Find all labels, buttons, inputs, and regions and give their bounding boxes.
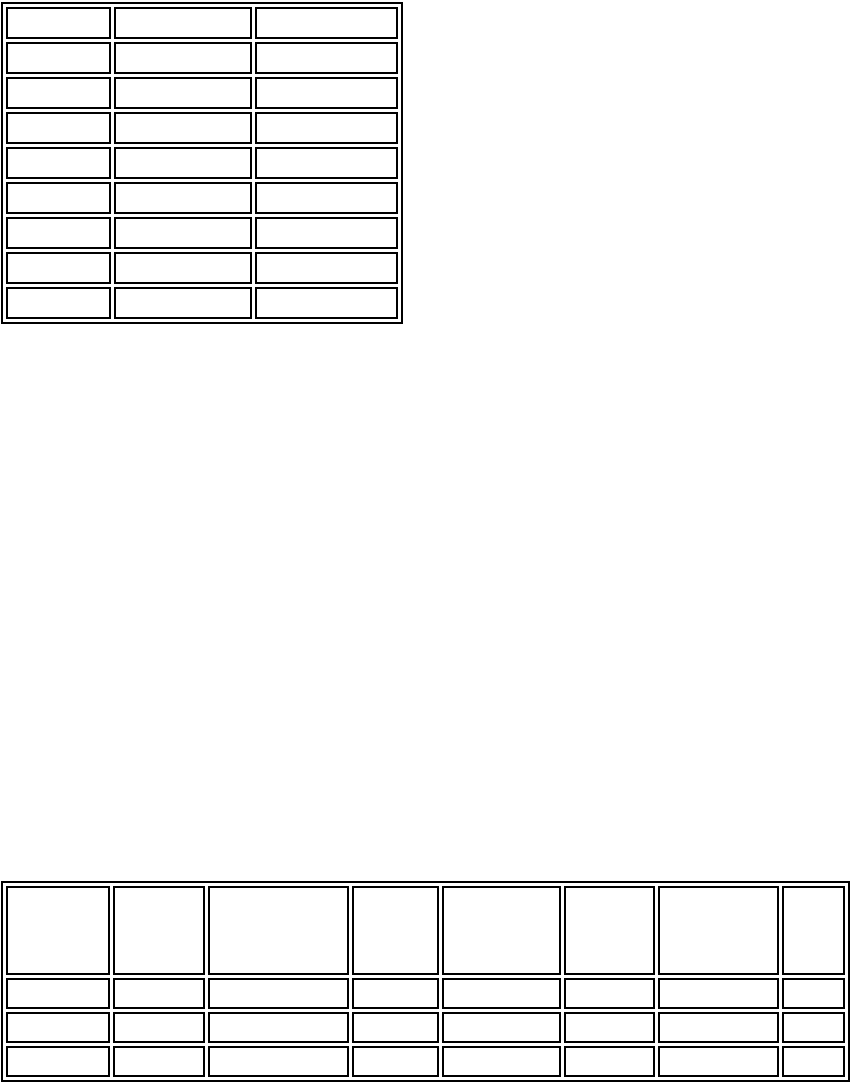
table-row	[6, 1012, 845, 1043]
table-cell	[782, 1046, 845, 1077]
table-cell	[352, 886, 439, 975]
table-row	[6, 112, 398, 144]
table-cell	[6, 287, 111, 319]
table-cell	[6, 112, 111, 144]
table-cell	[255, 42, 398, 74]
table-cell	[113, 1012, 205, 1043]
table-cell	[6, 978, 110, 1009]
table-cell	[352, 978, 439, 1009]
table-cell	[255, 7, 398, 39]
table-cell	[114, 77, 252, 109]
table-cell	[113, 978, 205, 1009]
table-row	[6, 182, 398, 214]
table-cell	[6, 252, 111, 284]
table-row	[6, 978, 845, 1009]
table-cell	[564, 1046, 655, 1077]
table-cell	[255, 217, 398, 249]
table-cell	[564, 1012, 655, 1043]
table-cell	[442, 1046, 561, 1077]
table-cell	[255, 77, 398, 109]
table-cell	[114, 252, 252, 284]
table-cell	[6, 1012, 110, 1043]
table-cell	[442, 978, 561, 1009]
table-cell	[255, 147, 398, 179]
table-row	[6, 77, 398, 109]
table-cell	[658, 886, 779, 975]
top-left-table-body	[6, 7, 398, 319]
table-cell	[208, 978, 349, 1009]
table-cell	[255, 182, 398, 214]
table-cell	[6, 77, 111, 109]
table-cell	[208, 1012, 349, 1043]
table-row	[6, 1046, 845, 1077]
table-cell	[208, 1046, 349, 1077]
table-row	[6, 147, 398, 179]
table-cell	[352, 1012, 439, 1043]
table-cell	[658, 978, 779, 1009]
table-cell	[113, 1046, 205, 1077]
table-cell	[6, 42, 111, 74]
table-cell	[113, 886, 205, 975]
table-cell	[6, 886, 110, 975]
table-cell	[6, 217, 111, 249]
table-row	[6, 42, 398, 74]
table-cell	[114, 217, 252, 249]
table-cell	[442, 886, 561, 975]
table-cell	[658, 1012, 779, 1043]
table-row	[6, 886, 845, 975]
table-cell	[782, 886, 845, 975]
table-cell	[564, 886, 655, 975]
table-cell	[782, 1012, 845, 1043]
table-row	[6, 217, 398, 249]
bottom-full-width-table	[1, 881, 850, 1082]
table-cell	[352, 1046, 439, 1077]
bottom-full-width-table-body	[6, 886, 845, 1077]
table-cell	[442, 1012, 561, 1043]
table-row	[6, 7, 398, 39]
table-cell	[255, 287, 398, 319]
table-cell	[255, 112, 398, 144]
table-cell	[114, 182, 252, 214]
table-cell	[114, 147, 252, 179]
table-cell	[564, 978, 655, 1009]
table-cell	[658, 1046, 779, 1077]
table-row	[6, 287, 398, 319]
table-cell	[114, 42, 252, 74]
table-cell	[6, 182, 111, 214]
table-cell	[782, 978, 845, 1009]
table-cell	[208, 886, 349, 975]
table-cell	[6, 147, 111, 179]
table-cell	[114, 112, 252, 144]
table-cell	[255, 252, 398, 284]
top-left-table	[1, 2, 403, 324]
table-cell	[6, 1046, 110, 1077]
table-cell	[114, 287, 252, 319]
table-cell	[114, 7, 252, 39]
table-row	[6, 252, 398, 284]
table-cell	[6, 7, 111, 39]
